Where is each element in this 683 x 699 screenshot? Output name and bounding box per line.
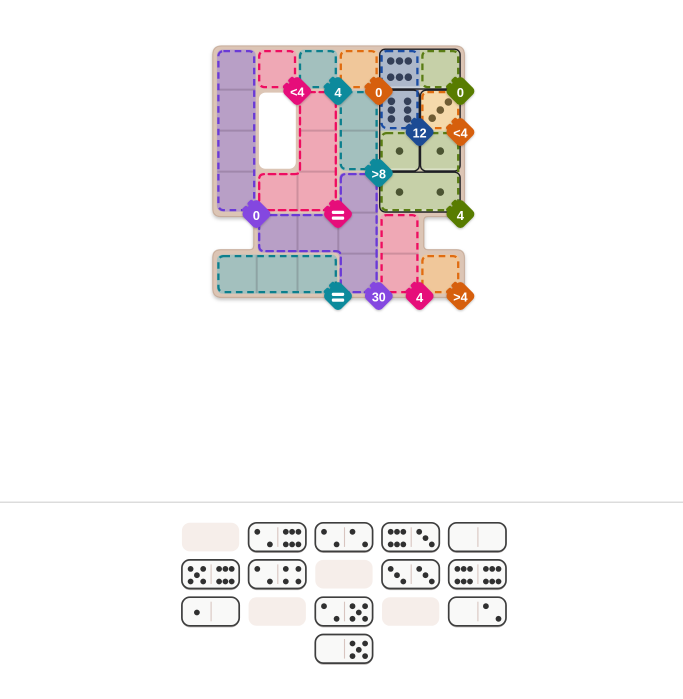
svg-text:>8: >8 [372,168,386,182]
svg-text:12: 12 [413,127,427,141]
svg-text:30: 30 [372,291,386,305]
svg-text:<4: <4 [453,127,467,141]
svg-text:4: 4 [416,290,424,305]
svg-text:>4: >4 [453,291,467,305]
svg-text:0: 0 [253,208,260,223]
svg-text:0: 0 [375,85,382,100]
svg-text:4: 4 [457,208,465,223]
svg-text:0: 0 [457,85,464,100]
svg-text:4: 4 [334,85,342,100]
svg-text:<4: <4 [290,86,304,100]
